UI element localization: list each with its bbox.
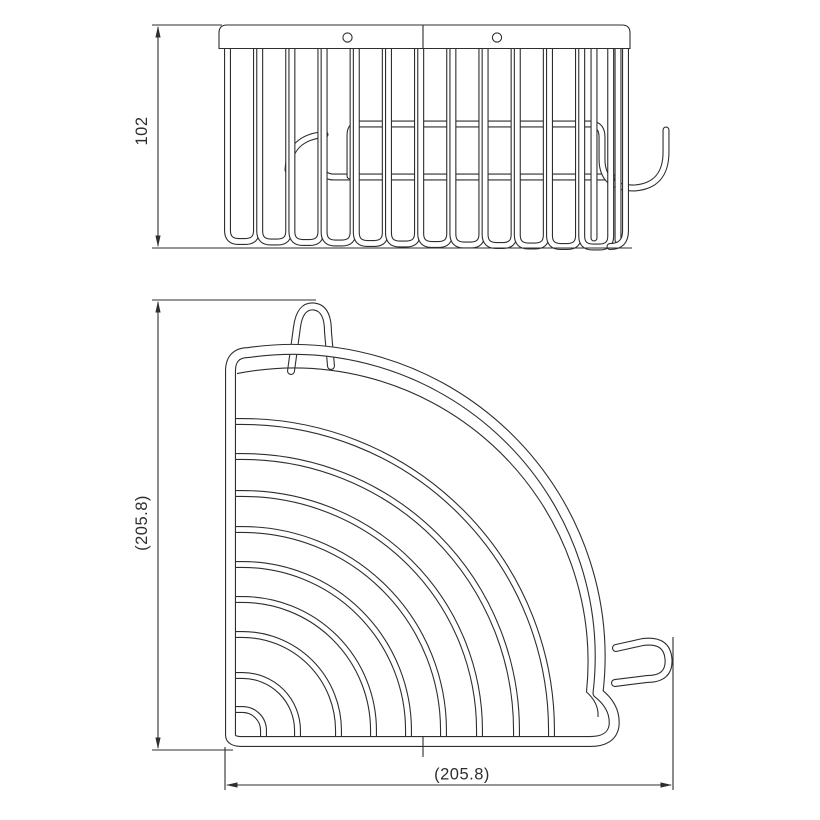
rim-frame <box>231 349 615 741</box>
arrowhead-down <box>155 738 160 750</box>
dimension-label-depth: (205.8) <box>133 495 151 551</box>
dimension-label-width: (205.8) <box>434 766 490 784</box>
arrowhead-left <box>226 782 238 787</box>
wire-arcs <box>237 422 552 737</box>
dimension-width: (205.8) <box>226 766 672 788</box>
wire-arc <box>237 635 339 737</box>
dimension-label-height: 102 <box>133 116 151 145</box>
wire-loop <box>356 48 385 244</box>
wire-loops <box>228 48 611 247</box>
wire-loop <box>228 48 257 242</box>
mounting-rail <box>219 25 630 49</box>
wire-loop <box>260 48 289 242</box>
technical-drawing: 102 (205.8) (205.8) <box>0 0 820 820</box>
wire-arc <box>237 710 264 737</box>
wire-loop <box>421 48 450 245</box>
wire-loop <box>228 48 257 242</box>
wire-loop <box>453 48 482 245</box>
dimension-depth: (205.8) <box>133 301 161 749</box>
wire-loop <box>453 48 482 245</box>
front-view: 102 <box>133 25 666 248</box>
wire-loop <box>389 48 418 244</box>
wire-loop <box>389 48 418 244</box>
wire-loop <box>485 48 514 246</box>
wire-arc <box>237 635 339 737</box>
arrowhead-right <box>661 782 673 787</box>
arrowhead-up <box>155 26 160 38</box>
wire-loop <box>356 48 385 244</box>
drawing-canvas: 102 (205.8) (205.8) <box>0 0 820 820</box>
plan-view: (205.8) (205.8) <box>133 300 673 790</box>
wire-loop <box>485 48 514 246</box>
wire-loop <box>517 48 546 246</box>
wire-arc <box>237 676 298 737</box>
basket-lower-rail <box>322 132 612 177</box>
wire-loop <box>421 48 450 245</box>
dimension-height-102: 102 <box>133 26 161 247</box>
wire-loop <box>550 48 579 247</box>
wire-loop <box>260 48 289 242</box>
arrowhead-up <box>155 301 160 313</box>
arrowhead-down <box>155 236 160 248</box>
basket-lower-rail <box>322 132 612 177</box>
wire-loop <box>550 48 579 247</box>
wire-loop <box>517 48 546 246</box>
rim-frame <box>231 349 615 741</box>
